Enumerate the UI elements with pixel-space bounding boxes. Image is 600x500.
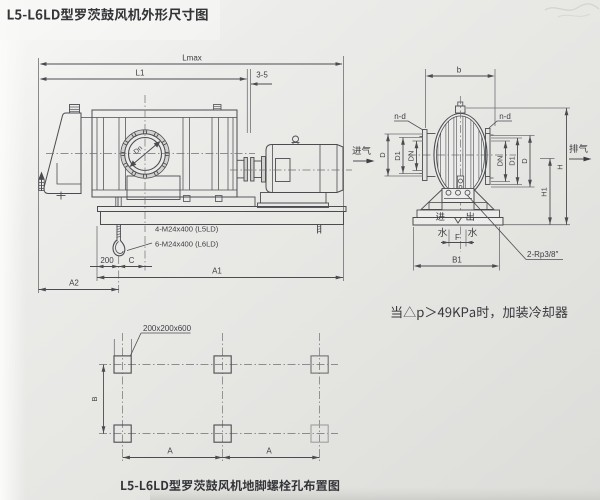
- svg-text:6-M24x400 (L6LD): 6-M24x400 (L6LD): [155, 240, 219, 249]
- svg-text:4-M24x400 (L5LD): 4-M24x400 (L5LD): [155, 225, 219, 234]
- svg-text:n-d: n-d: [394, 112, 406, 121]
- svg-text:L1: L1: [136, 69, 145, 78]
- svg-text:Lmax: Lmax: [182, 54, 202, 63]
- svg-text:200x200x600: 200x200x600: [143, 324, 192, 333]
- svg-text:3-5: 3-5: [256, 71, 268, 80]
- svg-text:D: D: [520, 158, 529, 164]
- svg-text:A1: A1: [212, 267, 222, 276]
- svg-text:DN: DN: [407, 151, 416, 162]
- svg-text:H: H: [556, 164, 565, 169]
- svg-text:2-Rp3/8″: 2-Rp3/8″: [527, 250, 558, 259]
- svg-text:200: 200: [100, 256, 114, 265]
- svg-text:D: D: [378, 152, 387, 158]
- svg-text:B: B: [90, 396, 99, 401]
- svg-text:B1: B1: [452, 256, 462, 265]
- svg-text:C: C: [129, 256, 135, 265]
- svg-text:A2: A2: [69, 279, 79, 288]
- svg-text:F: F: [455, 233, 460, 242]
- svg-text:n-d: n-d: [499, 112, 511, 121]
- svg-text:D1: D1: [508, 156, 517, 166]
- svg-text:A: A: [167, 447, 173, 456]
- svg-text:b: b: [457, 66, 462, 75]
- svg-text:H1: H1: [540, 187, 549, 197]
- svg-text:DN: DN: [496, 156, 505, 167]
- svg-text:D1: D1: [393, 151, 402, 161]
- svg-text:A: A: [266, 447, 272, 456]
